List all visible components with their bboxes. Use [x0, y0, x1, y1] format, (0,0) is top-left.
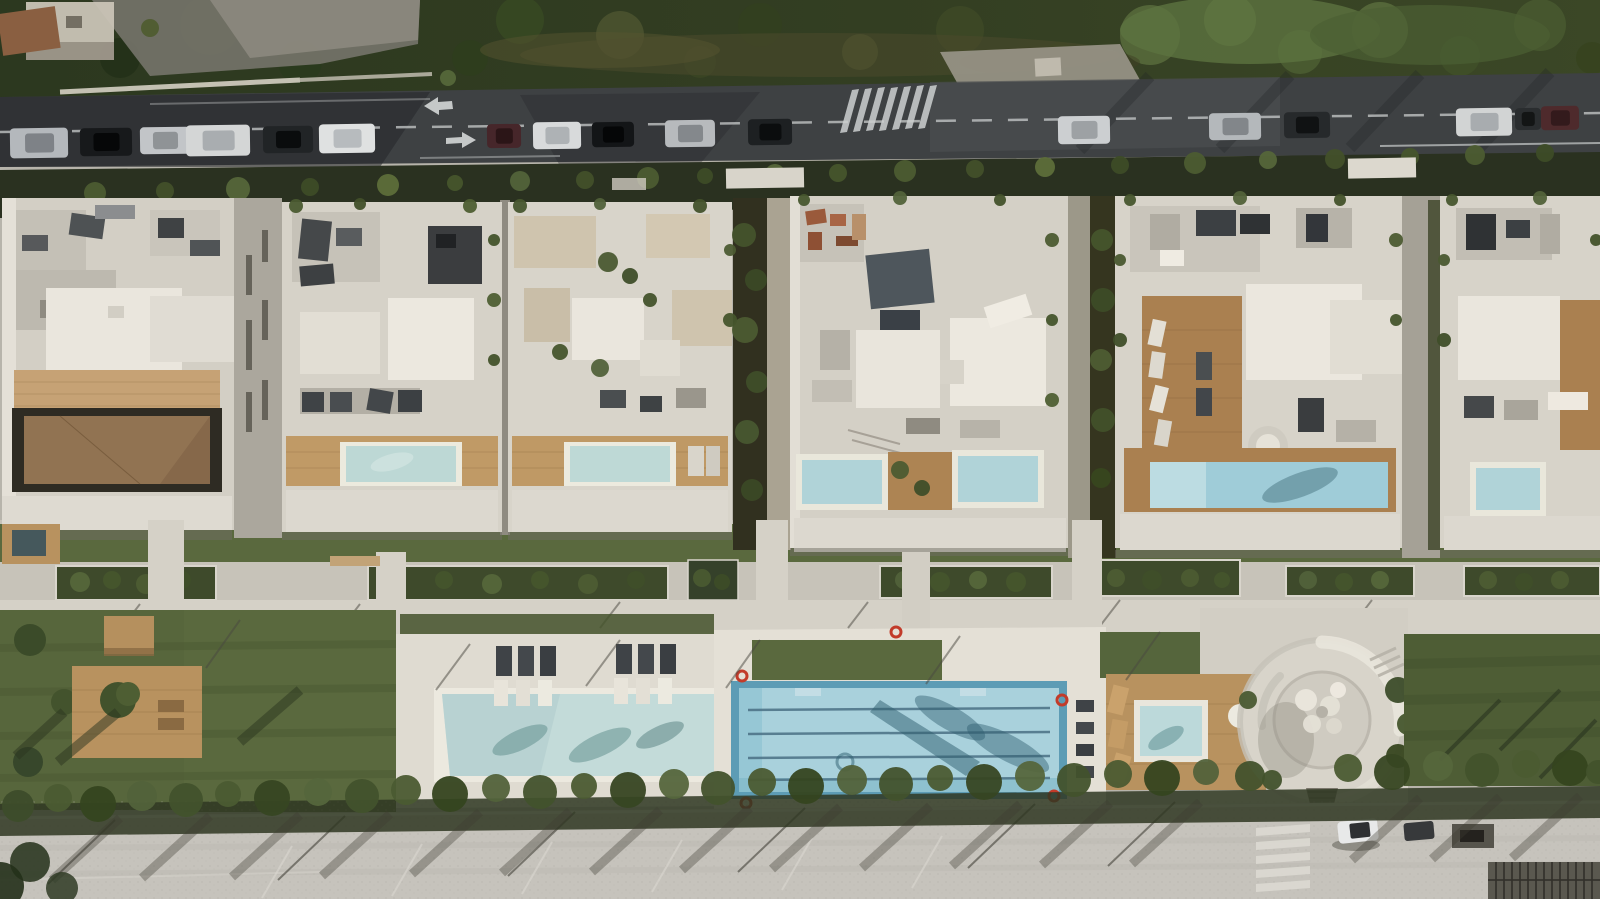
planter-box-2 [368, 566, 668, 600]
seafront-tree-row [1144, 760, 1180, 796]
villa-3-planters [723, 313, 737, 327]
hedge-palm-crowns [1035, 157, 1055, 177]
seafront-tree-row [1423, 751, 1453, 781]
villa-4-roof-volume [856, 330, 940, 408]
seafront-tree-row [748, 768, 776, 796]
planter-shrubs-7 [1551, 571, 1569, 589]
sun-loungers-dark-3 [540, 646, 556, 676]
villa-3-roof-item [600, 390, 626, 408]
entry-pergola-white [726, 167, 804, 188]
seafront-tree-row [215, 781, 241, 807]
platform-loungers-2 [158, 718, 184, 730]
villa-4-terracotta-stack [805, 209, 827, 226]
villa-3-roof-volume-2 [640, 340, 680, 376]
car-roof-glass [678, 125, 703, 143]
villa-3-deck-loungers-2 [706, 446, 720, 476]
car-roof-glass [545, 127, 569, 145]
villa-6-planters [1437, 333, 1451, 347]
villa-4-materials-3 [906, 418, 940, 434]
villa-5-planters [1389, 233, 1403, 247]
garden-bench [330, 556, 380, 566]
villa-5-planters [1113, 333, 1127, 347]
bright-trees-right-2 [1310, 5, 1550, 65]
villa-4-terracotta-stack-3 [808, 232, 822, 250]
villa-6-kitchen-dark [1466, 214, 1496, 250]
promenade-dark-car [1403, 821, 1434, 842]
villa-1-chimney [108, 306, 124, 318]
seafront-tree-row [345, 779, 379, 813]
villa-2-planters [487, 293, 501, 307]
villa-4-planters [1045, 233, 1059, 247]
sun-loungers-dark [496, 646, 512, 676]
car-roof-glass [93, 133, 119, 151]
villa-3-awning-2 [646, 214, 710, 258]
hedge-palm-crowns [156, 182, 174, 200]
villa-3-roof-volume [572, 298, 644, 360]
villa-6-drop-shadow [1440, 550, 1600, 558]
plunge-pool-water [12, 530, 46, 556]
car-roof-glass [276, 131, 301, 149]
villa-5-gray-item [1336, 420, 1376, 442]
promenade-car-roof [1349, 822, 1370, 839]
seafront-tree-row [1334, 754, 1362, 782]
street-parked-cars [533, 122, 581, 150]
villa-2-loungers-2 [330, 392, 352, 412]
car-roof-glass [1551, 110, 1570, 126]
gap-trees-v3-v4 [735, 420, 759, 444]
lawn-trees-left [14, 624, 46, 656]
car-roof-glass [1071, 121, 1097, 139]
car-roof-glass [25, 133, 54, 153]
villa-6-white-sofa [1548, 392, 1588, 410]
villa-2-lower-terrace [286, 490, 498, 532]
villa-4-tarp [865, 249, 934, 309]
villa-5-dark-loungers [1196, 352, 1212, 380]
villa-3-roof-plants [622, 268, 638, 284]
villa-4-deck-plants [914, 480, 930, 496]
street-parked-cars [319, 124, 375, 154]
villa-5-planters [1124, 194, 1136, 206]
lounger-mats-white [494, 680, 508, 706]
utility-box [1035, 57, 1062, 76]
hedge-palm-crowns [1184, 152, 1206, 174]
seafront-tree-row [701, 771, 735, 805]
gap-path-v4-v5 [1068, 196, 1090, 558]
hedge-palm-crowns [894, 160, 916, 182]
villa-1-roof-items-4 [158, 218, 184, 238]
wood-pavilion-shade [104, 648, 154, 656]
street-parked-cars [1456, 108, 1512, 137]
gap-trees-v4-v5 [1091, 229, 1113, 251]
seafront-tree-row [1235, 761, 1265, 791]
pavilion-greenery [1239, 691, 1257, 709]
villa-4-terracotta-stack-2 [830, 214, 846, 226]
hedge-palm-crowns [966, 160, 984, 178]
seafront-tree-row [80, 786, 116, 822]
aerial-photograph: Aerial drone view of a beachfront white … [0, 0, 1600, 899]
lawn-right-mow-stripes [1404, 660, 1600, 664]
villa-3-planters [594, 198, 606, 210]
villa-3-roof-plants [598, 252, 618, 272]
villa-6-dark-lounge [1464, 396, 1494, 418]
sun-loungers-dark-5 [638, 644, 654, 674]
street-parked-cars [665, 120, 715, 148]
seafront-tree-row [837, 765, 867, 795]
seafront-tree-row [1465, 753, 1499, 787]
garden-vertical-path-3 [756, 520, 788, 636]
villa-5-roof-item-3 [1150, 214, 1180, 250]
lap-pool-steps-2 [960, 688, 986, 696]
street-parked-cars [263, 126, 313, 154]
planter-shrubs [103, 571, 121, 589]
pavilion-court-shade [1258, 702, 1314, 778]
villa-3-roof-plants [591, 359, 609, 377]
villa-6-pool-water [1476, 468, 1540, 510]
gap-facade-v1-v2 [234, 198, 282, 538]
hedge-palm-crowns [1465, 145, 1485, 165]
gap-trees-v4-v5 [1090, 349, 1112, 371]
planter-shrubs-4 [930, 572, 950, 592]
hedge-palm-crowns [510, 171, 530, 191]
gap-hedge-v5-v6 [1428, 200, 1440, 550]
garden-vertical-path-4 [902, 552, 930, 636]
car-roof-glass [203, 130, 235, 150]
villa-5-pool-shallow-end [1150, 462, 1206, 508]
planter-shrubs-2 [531, 571, 549, 589]
seafront-tree-row [523, 775, 557, 809]
gap-trees-v3-v4 [732, 223, 756, 247]
street-parked-cars [80, 128, 132, 157]
gap-trees-v3-v4 [746, 371, 768, 393]
villa-2-roof-item-2 [336, 228, 362, 246]
hedge-palm-crowns [1325, 149, 1345, 169]
villa-5-roof-item-4 [1160, 250, 1184, 266]
seafront-tree-row [659, 769, 689, 799]
lounger-mats-white-3 [538, 680, 552, 706]
pavilion-round-seats [1330, 682, 1346, 698]
gap-trees-v4-v5 [1091, 468, 1111, 488]
aerial-scene [0, 0, 1600, 899]
street-parked-cars [1541, 106, 1579, 131]
villa-2-loungers-4 [398, 390, 422, 412]
hedge-palm-crowns [576, 171, 594, 189]
lap-pool-lawn-patch [752, 640, 942, 680]
villa-3-deck-loungers [688, 446, 704, 476]
hedge-palm-crowns [447, 175, 463, 191]
seafront-tree-row [1512, 750, 1540, 778]
platform-tree-highlight [116, 682, 140, 706]
villa-5-dark-loungers-2 [1196, 388, 1212, 416]
planter-shrubs-3 [714, 574, 730, 590]
car-roof-glass [1470, 113, 1498, 131]
planter-shrubs-6 [1335, 573, 1353, 591]
street-parked-cars [748, 119, 792, 146]
sun-loungers-dark-6 [660, 644, 676, 674]
planter-shrubs-6 [1299, 571, 1317, 589]
villa-4-pool-right-water [958, 456, 1038, 502]
lap-deck-loungers-3 [1076, 744, 1094, 756]
villa-3-planters [724, 244, 736, 256]
hedge-palm-crowns [1111, 156, 1129, 174]
seafront-tree-row [2, 790, 34, 822]
street-parked-cars [186, 125, 250, 157]
pavilion-greenery [1262, 770, 1282, 790]
planter-shrubs-5 [1214, 572, 1230, 588]
villa-5-planters [1334, 194, 1346, 206]
hedge-palm-crowns [377, 174, 399, 196]
villa-2-loungers-3 [366, 388, 393, 414]
villa-2-loungers [302, 392, 324, 412]
sun-loungers-dark-4 [616, 644, 632, 674]
seafront-tree-row [44, 784, 72, 812]
villa-4-materials [820, 330, 850, 370]
seafront-tree-row [432, 776, 468, 812]
seafront-tree-row [966, 764, 1002, 800]
villa-1-roof-items-3 [95, 205, 135, 219]
gap-trees-v3-v4 [745, 269, 767, 291]
villa-6-kitchen-dark-2 [1506, 220, 1530, 238]
villa-5-planters [1233, 191, 1247, 205]
villa-4-roof-volume-2 [950, 318, 1046, 406]
villa-5-planters [1114, 254, 1126, 266]
planter-shrubs-6 [1371, 571, 1389, 589]
planter-shrubs-5 [1181, 569, 1199, 587]
villa-6-island [1540, 214, 1560, 254]
seafront-tree-row [1374, 754, 1410, 790]
villa-4-roof-notch [940, 360, 964, 384]
pale-pool-hedge-top [400, 614, 714, 634]
gap-path-v3-v4 [767, 198, 791, 550]
seafront-tree-row [254, 780, 290, 816]
lawn-mow-stripes [0, 644, 396, 648]
villa-4-lower-terrace [794, 518, 1066, 552]
street-parked-cars [140, 127, 190, 155]
villa-2-drop-shadow [282, 532, 502, 540]
planter-shrubs-2 [578, 574, 598, 594]
lawn-mow-stripes [0, 774, 396, 778]
seafront-tree-row [482, 774, 510, 802]
entry-pergola-white-2 [1348, 157, 1416, 178]
lounger-mats-white-5 [636, 678, 650, 704]
lounger-mats-white-6 [658, 678, 672, 704]
hedge-palm-crowns [829, 164, 847, 182]
villa-6-gray-item [1504, 400, 1538, 420]
entry-gate-small [612, 178, 646, 190]
villa-3-roof-item-3 [676, 388, 706, 408]
villa-6-planters [1533, 191, 1547, 205]
seafront-tree-row [1057, 763, 1091, 797]
villa-4-materials-2 [812, 380, 852, 402]
platform-loungers [158, 700, 184, 712]
car-roof-glass [1222, 118, 1248, 136]
gap-trees-v4-v5 [1091, 288, 1115, 312]
villa-4-planters [1046, 314, 1058, 326]
seafront-tree-row [391, 775, 421, 805]
gap-trees-v3-v4 [741, 479, 763, 501]
pavilion-round-seats [1326, 718, 1342, 734]
planter-shrubs-5 [1107, 569, 1125, 587]
hedge-palm-crowns [226, 177, 250, 201]
planter-shrubs-7 [1479, 571, 1497, 589]
villa-2-planters [488, 354, 500, 366]
car-roof-glass [603, 126, 624, 142]
lawn-right-mow-stripes [1404, 732, 1600, 736]
villa-6-lower-terrace [1444, 516, 1600, 550]
lawn-right-mow-stripes [1404, 696, 1600, 700]
villa-5-roof-item-2 [1240, 214, 1270, 234]
seafront-tree-row [1193, 759, 1219, 785]
planter-shrubs-4 [969, 571, 987, 589]
palm-top [440, 70, 456, 86]
top-tree-canopies [452, 40, 488, 76]
villa-4-pool-left-water [802, 460, 882, 504]
street-parked-cars [592, 122, 634, 148]
gap-trees-v4-v5 [1091, 408, 1115, 432]
planter-shrubs-4 [1006, 572, 1026, 592]
street-parked-cars [1058, 116, 1110, 145]
seafront-tree-row [788, 768, 824, 804]
seafront-tree-row [127, 781, 157, 811]
villa-6-planters [1438, 254, 1450, 266]
villa-2-charcoal-hatch [436, 234, 456, 248]
street-parked-cars [10, 128, 68, 159]
planter-shrubs [70, 572, 90, 592]
garden-vertical-path-5 [1072, 520, 1102, 636]
lap-pool-lawn-patch-2 [1100, 632, 1200, 678]
villa-2-planters [354, 198, 366, 210]
hedge-palm-crowns [1536, 144, 1554, 162]
seafront-tree-row [1015, 761, 1045, 791]
villa-2-roof-item-3 [299, 264, 335, 287]
villa-2-roof-item [298, 219, 332, 262]
planter-shrubs-2 [435, 571, 453, 589]
villa-5-bbq [1298, 398, 1324, 432]
villa-4-planters [798, 194, 810, 206]
villa-3-awning-3 [524, 288, 570, 342]
villa-5-kitchen-dark [1306, 214, 1328, 242]
planter-shrubs-2 [482, 574, 502, 594]
scrub-strip-2 [480, 32, 720, 68]
villa-5-roof-volume-2 [1330, 300, 1402, 374]
villa-3-roof-plants [643, 293, 657, 307]
lap-pool-steps [795, 688, 821, 696]
villa-2-planters [289, 199, 303, 213]
villa-3-planters [513, 199, 527, 213]
villa-2-roof-volume-2 [300, 312, 380, 374]
street-parked-cars [1209, 113, 1261, 141]
villa-4-deck-plants [891, 461, 909, 479]
pavilion-table [1316, 706, 1328, 718]
villa-6-wood-deck [1560, 300, 1600, 450]
villa-1-roof-volume-2 [150, 296, 234, 362]
villa-3-pool-water [570, 446, 670, 482]
villa-1-roof-items-2 [22, 235, 48, 251]
planter-shrubs-5 [1142, 570, 1162, 590]
car-roof-glass [1296, 117, 1319, 134]
seafront-tree-row [927, 765, 953, 791]
villa-6-planters [1446, 194, 1458, 206]
villa-2-planters [463, 199, 477, 213]
villa-4-planters [1045, 393, 1059, 407]
hedge-palm-crowns [301, 178, 319, 196]
street-parked-cars [1284, 112, 1330, 139]
sun-loungers-dark-2 [518, 646, 534, 676]
villa-4-planters [893, 191, 907, 205]
car-roof-glass [759, 124, 781, 141]
villa-2-roof-volume [388, 298, 474, 380]
street-parked-cars [487, 124, 521, 148]
villa-4-planters [994, 194, 1006, 206]
house-window [66, 16, 82, 28]
palm-top [141, 19, 159, 37]
villa-3-awning-4 [672, 290, 732, 346]
hedge-palm-crowns [697, 168, 713, 184]
lounger-mats-white-2 [516, 680, 530, 706]
villa-5-roof-item [1196, 210, 1236, 236]
villa-6-roof-volume [1458, 296, 1560, 380]
lap-deck-loungers [1076, 700, 1094, 712]
car-roof-glass [1522, 112, 1535, 126]
villa-3-planters [693, 199, 707, 213]
villa-3-lower-terrace [512, 490, 728, 532]
villa-3-awning [514, 216, 596, 268]
villa-3-roof-item-2 [640, 396, 662, 412]
car-roof-glass [496, 128, 513, 144]
pavilion-round-seats [1295, 689, 1317, 711]
lounger-mats-white-4 [614, 678, 628, 704]
planter-shrubs-2 [627, 571, 645, 589]
seafront-tree-row [610, 772, 646, 808]
villa-4-materials-4 [960, 420, 1000, 438]
villa-4-pallet [852, 214, 866, 240]
seafront-tree-row [1104, 760, 1132, 788]
car-roof-glass [153, 132, 178, 150]
villa-3-drop-shadow [508, 532, 732, 540]
planter-shrubs-7 [1515, 573, 1533, 591]
seafront-tree-row [879, 767, 913, 801]
lap-deck-loungers-2 [1076, 722, 1094, 734]
planter-shrubs-3 [693, 569, 711, 587]
villa-5-drop-shadow [1115, 550, 1402, 558]
street-parked-cars [1515, 108, 1541, 130]
hedge-palm-crowns [1259, 151, 1277, 169]
seafront-tree-row [1552, 750, 1588, 786]
terracotta-roof [0, 6, 61, 56]
villa-1-roof-items-5 [190, 240, 220, 256]
villa-2-planters [488, 234, 500, 246]
car-roof-glass [333, 129, 361, 148]
pavilion-round-seats [1303, 715, 1321, 733]
seafront-tree-row [169, 783, 203, 817]
seafront-tree-row [571, 773, 597, 799]
seafront-tree-row [304, 778, 332, 806]
villa-3-roof-plants [552, 344, 568, 360]
villa-5-planters [1390, 314, 1402, 326]
villa-5-lower-terrace [1120, 514, 1400, 550]
